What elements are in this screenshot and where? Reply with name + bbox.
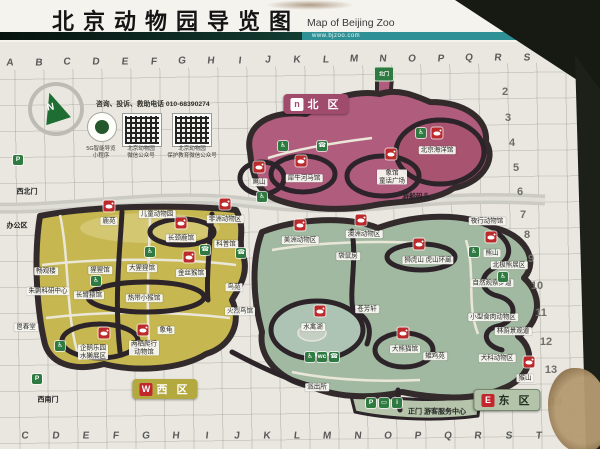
- lion-tiger-hill-label: 狮虎山 虎山环廊: [402, 256, 453, 264]
- facility-wheelchair-1: ♿: [416, 128, 426, 138]
- golden-monkey-house-icon: [184, 252, 195, 263]
- north-zone-badge: n 北 区: [283, 94, 348, 114]
- facility-wheelchair-4: ♿: [145, 247, 155, 257]
- toilet-icon: wc: [317, 352, 327, 362]
- crocodile-icon: [138, 325, 149, 336]
- flamingo-house-label: 火烈鸟馆: [225, 307, 255, 315]
- zoo-map-photo: 北京动物园导览图 Map of Beijing Zoo www.bjzoo.co…: [0, 0, 600, 449]
- pheasant-garden-label: 雉鸡苑: [423, 352, 447, 360]
- wheelchair-icon: ♿: [257, 192, 267, 202]
- waterfowl-lake-label: 水禽湖: [301, 323, 325, 331]
- north-gate-marker: 北门: [374, 67, 394, 82]
- boat-dock-label: 游船码头: [400, 193, 432, 201]
- facility-wheelchair-5: ♿: [91, 276, 101, 286]
- shaded-scenic-path-label: 林荫景观道: [495, 327, 532, 335]
- wheelchair-icon: ♿: [278, 141, 288, 151]
- penguin-park-label: 企鹅乐园水獭展区: [78, 345, 108, 360]
- north-zone-label: 北 区: [307, 96, 341, 112]
- australia-animals-icon: [356, 215, 367, 226]
- gibbon-house-label: 长臂猿馆: [74, 291, 104, 299]
- rhino-icon: [296, 156, 307, 167]
- panda-house-label: 大熊猫馆: [390, 345, 420, 353]
- eagle-hill-label: 鹰山: [251, 178, 268, 186]
- main-gate-bus: ▭: [379, 398, 389, 408]
- north-zone-letter-icon: n: [290, 98, 303, 111]
- lion-tiger-hill-icon: [414, 239, 425, 250]
- penguin-park-icon: [99, 328, 110, 339]
- phone-icon: ☎: [200, 245, 210, 255]
- giraffe-house-icon: [176, 218, 187, 229]
- america-animals-icon: [295, 220, 306, 231]
- deer-garden-label: 鹿苑: [101, 217, 118, 225]
- giraffe-house-label: 长颈鹿馆: [166, 234, 196, 242]
- facility-phone-2: ☎: [236, 248, 246, 258]
- elephant-house-icon: [386, 149, 397, 160]
- rhino-hippo-house-label: 犀牛河马馆: [286, 174, 323, 182]
- phone-icon: ☎: [317, 141, 327, 151]
- australia-animals-label: 澳洲动物区: [346, 230, 383, 238]
- info-icon: i: [392, 398, 402, 408]
- rhino-hippo-house-icon: [296, 156, 307, 167]
- facility-wheelchair-3: ♿: [257, 192, 267, 202]
- eagle-icon: [254, 162, 265, 173]
- office-area-label: 办公区: [5, 222, 30, 230]
- tortoise-label: 象龟: [158, 326, 175, 334]
- bear-hill-icon: [486, 232, 497, 243]
- reptile-house-label: 两栖爬行动物馆: [129, 341, 159, 356]
- aquarium-icon: [432, 128, 443, 139]
- northwest-gate-label: 西北门: [15, 188, 40, 196]
- west-zone-badge: W 西 区: [132, 379, 197, 399]
- wheelchair-icon: ♿: [305, 352, 315, 362]
- wheelchair-icon: ♿: [416, 128, 426, 138]
- night-animal-house-label: 夜行动物馆: [469, 217, 506, 225]
- gorilla-house-label: 大猩猩馆: [127, 264, 157, 272]
- penguin-icon: [99, 328, 110, 339]
- deer-garden-icon: [104, 201, 115, 212]
- kangaroo-house-label: 袋鼠房: [336, 252, 360, 260]
- facility-phone-3: ☎: [200, 245, 210, 255]
- changguan-tower-label: 畅观楼: [34, 267, 58, 275]
- canine-area-label: 犬科动物区: [479, 354, 516, 362]
- east-zone-badge: E 东 区: [473, 389, 540, 411]
- east-zone-label: 东 区: [498, 392, 532, 408]
- feature-layer: 西北门P办公区畅观楼朱鹮科研中心鬯春堂西南门P鹿苑儿童动物园非洲动物区长颈鹿馆科…: [0, 0, 600, 449]
- main-gate-label: 正门 游客服务中心: [406, 408, 468, 416]
- monkey-icon: [184, 252, 195, 263]
- facility-wheelchair-2: ♿: [278, 141, 288, 151]
- waterfowl-lake-icon: [315, 306, 326, 317]
- southwest-gate-parking: P: [32, 374, 42, 384]
- police-station-label: 派出所: [305, 383, 329, 391]
- facility-phone-4: ☎: [329, 352, 339, 362]
- wheelchair-icon: ♿: [498, 272, 508, 282]
- america-animals-label: 美洲动物区: [282, 236, 319, 244]
- crane-icon: [315, 306, 326, 317]
- facility-wheelchair-6: ♿: [55, 341, 65, 351]
- eagle-hill-icon: [254, 162, 265, 173]
- east-zone-letter-icon: E: [481, 394, 494, 407]
- phone-icon: ☎: [329, 352, 339, 362]
- northwest-gate-parking: P: [13, 155, 23, 165]
- elephant-house-label: 象馆童话广场: [377, 170, 407, 185]
- parking-icon: P: [13, 155, 23, 165]
- bear-hill-label: 熊山: [484, 249, 501, 257]
- changchun-hall-label: 鬯春堂: [14, 323, 38, 331]
- wheelchair-icon: ♿: [55, 341, 65, 351]
- main-gate-parking: P: [366, 398, 376, 408]
- cangfang-pavilion-label: 苍芳轩: [355, 305, 379, 313]
- reptile-house-icon: [138, 325, 149, 336]
- facility-toilet-1: wc: [317, 352, 327, 362]
- phone-icon: ☎: [236, 248, 246, 258]
- zebra-icon: [220, 199, 231, 210]
- ibis-research-center-label: 朱鹮科研中心: [27, 287, 70, 295]
- facility-wheelchair-9: ♿: [498, 272, 508, 282]
- panda-house-icon: [398, 328, 409, 339]
- parking-icon: P: [32, 374, 42, 384]
- facility-wheelchair-8: ♿: [469, 247, 479, 257]
- panda-icon: [398, 328, 409, 339]
- monkey-hill-label: 猴山: [517, 374, 534, 382]
- facility-phone-1: ☎: [317, 141, 327, 151]
- bird-garden-label: 鸟苑: [226, 283, 243, 291]
- deer-icon: [104, 201, 115, 212]
- small-carnivore-area-label: 小型食肉动物区: [468, 313, 518, 321]
- west-zone-label: 西 区: [156, 381, 190, 397]
- tropical-monkey-house-label: 热带小猴馆: [126, 294, 163, 302]
- north-gate-icon: 北门: [374, 67, 394, 82]
- llama-icon: [295, 220, 306, 231]
- aquarium-label: 北京海洋馆: [419, 146, 456, 154]
- monkey-hill-icon: [524, 357, 535, 368]
- africa-animals-icon: [220, 199, 231, 210]
- elephant-icon: [386, 149, 397, 160]
- west-zone-letter-icon: W: [139, 383, 152, 396]
- science-hall-label: 科普馆: [214, 240, 238, 248]
- wheelchair-icon: ♿: [469, 247, 479, 257]
- orangutan-house-label: 猩猩馆: [88, 266, 112, 274]
- africa-animals-label: 非洲动物区: [207, 215, 244, 223]
- tiger-icon: [414, 239, 425, 250]
- southwest-gate-label: 西南门: [36, 396, 61, 404]
- golden-monkey-house-label: 金丝猴馆: [176, 269, 206, 277]
- main-gate-info: i: [392, 398, 402, 408]
- wheelchair-icon: ♿: [91, 276, 101, 286]
- giraffe-icon: [176, 218, 187, 229]
- wheelchair-icon: ♿: [145, 247, 155, 257]
- kangaroo-icon: [356, 215, 367, 226]
- bus-icon: ▭: [379, 398, 389, 408]
- polar-bear-area-label: 北极熊展区: [491, 261, 528, 269]
- seal-icon: [432, 128, 443, 139]
- parking-icon: P: [366, 398, 376, 408]
- monkey-icon: [524, 357, 535, 368]
- bear-icon: [486, 232, 497, 243]
- facility-wheelchair-7: ♿: [305, 352, 315, 362]
- children-zoo-label: 儿童动物园: [139, 210, 176, 218]
